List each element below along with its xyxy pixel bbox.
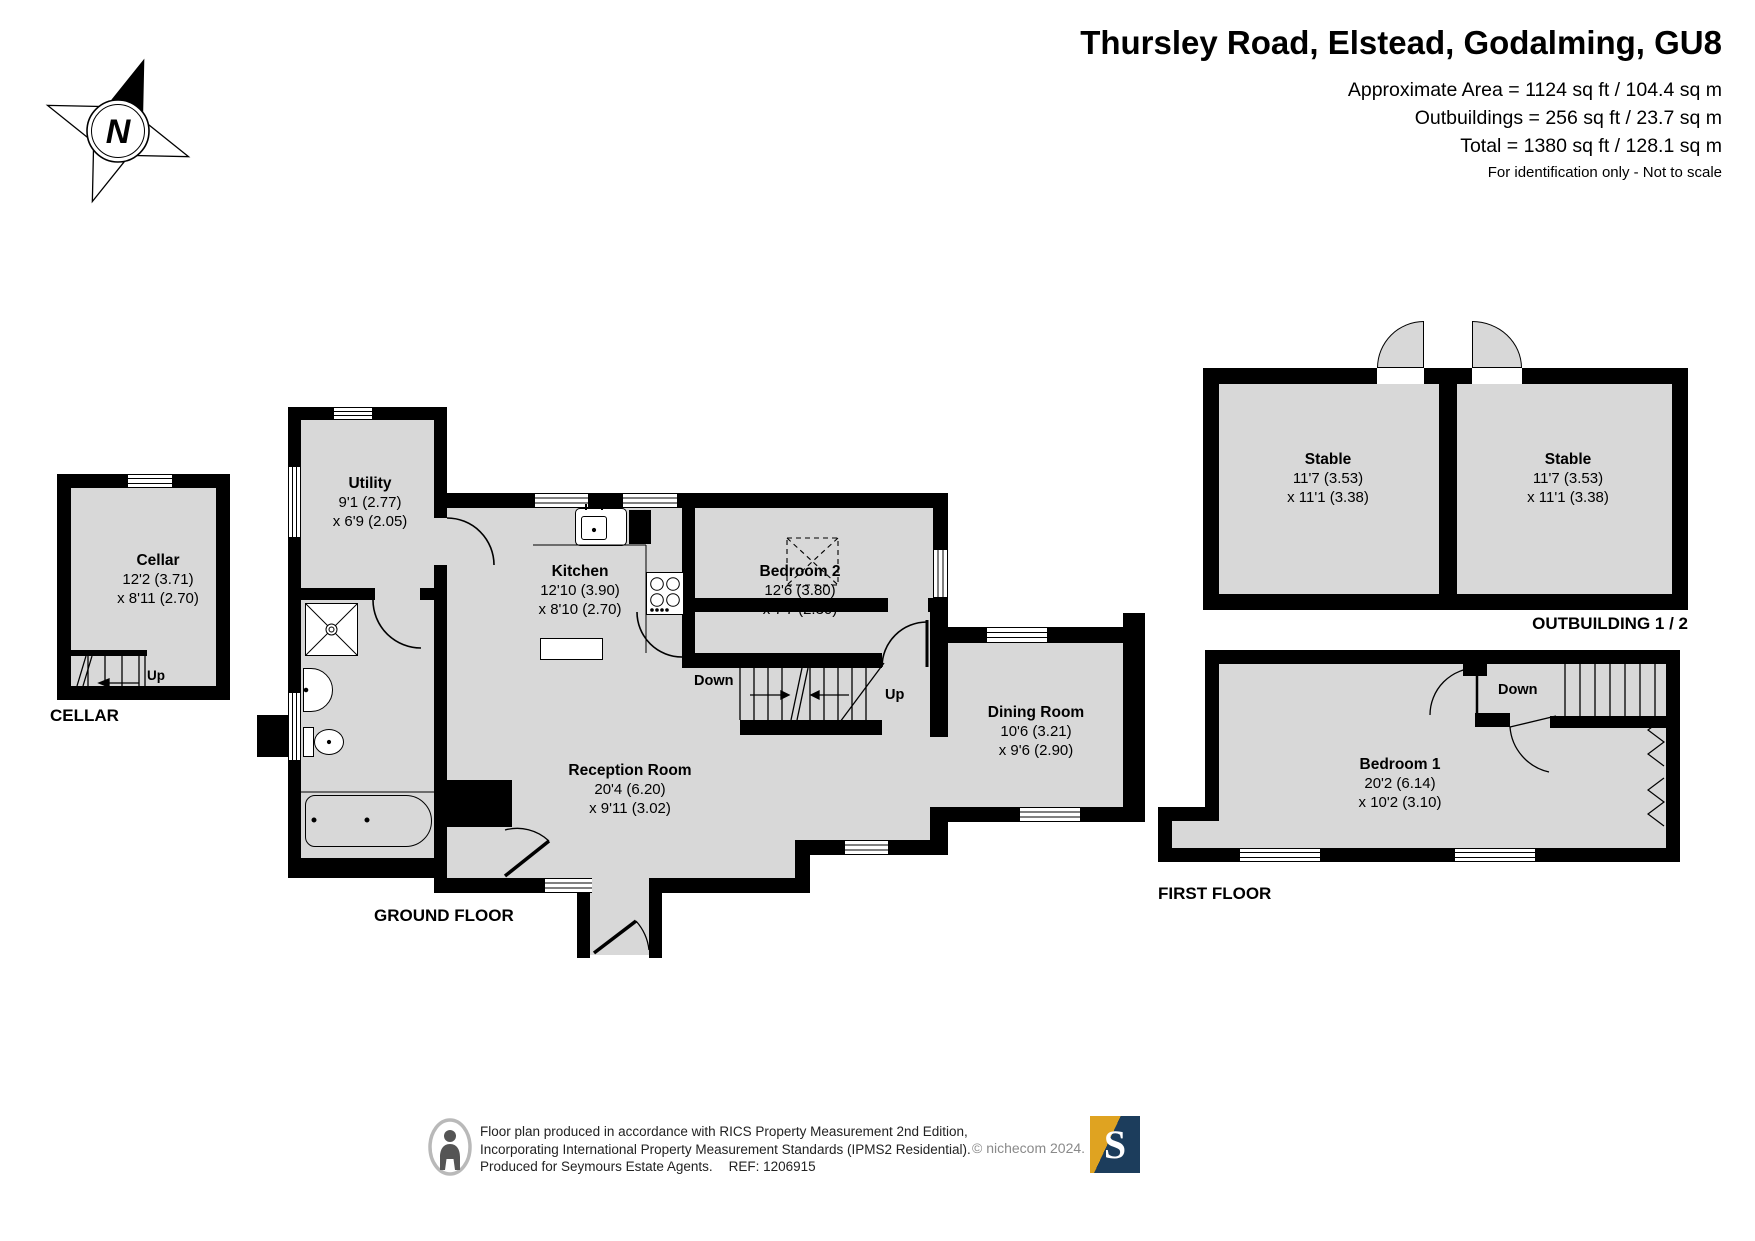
- footer-line2: Incorporating International Property Mea…: [480, 1141, 971, 1159]
- wall: [1522, 368, 1688, 384]
- window: [545, 878, 592, 893]
- wall: [257, 715, 288, 757]
- reference-number: REF: 1206915: [729, 1159, 816, 1174]
- stairs-down-label: Down: [694, 673, 733, 689]
- room-dim: x 6'9 (2.05): [333, 512, 408, 531]
- door-swing: [1472, 321, 1522, 368]
- room-label-stable1: Stable 11'7 (3.53) x 11'1 (3.38): [1287, 450, 1369, 507]
- bathtub: [305, 795, 432, 847]
- seymours-logo: S: [1090, 1116, 1140, 1173]
- sink-bowl: [581, 516, 607, 540]
- window: [933, 550, 948, 597]
- wall: [447, 780, 512, 827]
- window: [623, 493, 677, 508]
- wall: [740, 720, 882, 735]
- wall: [1158, 848, 1680, 862]
- kitchen-unit: [540, 638, 603, 660]
- bedroom1-floor: [1219, 664, 1666, 848]
- wall: [649, 893, 662, 958]
- window: [288, 467, 301, 537]
- room-dim: x 8'10 (2.70): [539, 600, 622, 619]
- stairs-up-label: Up: [147, 668, 165, 683]
- window: [845, 840, 888, 855]
- wall: [1672, 368, 1688, 610]
- room-name: Reception Room: [568, 761, 691, 780]
- wall: [930, 612, 948, 737]
- produced-for: Produced for Seymours Estate Agents.: [480, 1159, 713, 1174]
- compass-icon: N: [22, 35, 214, 227]
- wall: [1439, 384, 1457, 594]
- door-swing: [1377, 321, 1424, 368]
- wall: [1550, 716, 1666, 728]
- room-name: Stable: [1527, 450, 1609, 469]
- room-name: Kitchen: [539, 562, 622, 581]
- room-dim: 12'6 (3.80): [760, 581, 841, 600]
- logo-letter: S: [1104, 1121, 1126, 1168]
- wall: [1203, 594, 1688, 610]
- person-icon: [430, 1120, 470, 1174]
- room-label-utility: Utility 9'1 (2.77) x 6'9 (2.05): [333, 474, 408, 531]
- dining-floor: [930, 737, 948, 807]
- wall: [288, 858, 447, 878]
- door-opening: [434, 518, 447, 565]
- wall: [1123, 613, 1145, 822]
- window: [288, 693, 301, 760]
- room-dim: x 10'2 (3.10): [1359, 793, 1442, 812]
- wall: [288, 588, 447, 600]
- room-dim: 11'7 (3.53): [1287, 469, 1369, 488]
- room-label-kitchen: Kitchen 12'10 (3.90) x 8'10 (2.70): [539, 562, 622, 619]
- window: [334, 407, 372, 420]
- room-dim: 20'4 (6.20): [568, 780, 691, 799]
- kitchen-appliance: [629, 510, 651, 544]
- page-title: Thursley Road, Elstead, Godalming, GU8: [1080, 24, 1722, 62]
- toilet-bowl: [314, 729, 344, 755]
- room-dim: 12'10 (3.90): [539, 581, 622, 600]
- wall: [1205, 650, 1680, 664]
- wall: [434, 407, 447, 518]
- room-name: Cellar: [117, 551, 199, 570]
- room-name: Dining Room: [988, 703, 1084, 722]
- room-name: Bedroom 2: [760, 562, 841, 581]
- wall: [434, 878, 545, 893]
- window: [1020, 807, 1080, 822]
- room-label-reception: Reception Room 20'4 (6.20) x 9'11 (3.02): [568, 761, 691, 818]
- window: [1240, 848, 1320, 862]
- wall: [434, 600, 447, 858]
- shower-tray: [305, 603, 358, 656]
- approximate-area: Approximate Area = 1124 sq ft / 104.4 sq…: [1348, 79, 1722, 102]
- wall: [795, 840, 810, 893]
- room-dim: x 9'11 (3.02): [568, 799, 691, 818]
- hob: [646, 572, 684, 615]
- total-area: Total = 1380 sq ft / 128.1 sq m: [1460, 135, 1722, 158]
- porch-floor: [590, 893, 649, 955]
- wall: [577, 893, 590, 958]
- stairs-up-label: Up: [885, 687, 904, 703]
- room-dim: x 11'1 (3.38): [1287, 488, 1369, 507]
- wall: [1205, 650, 1219, 821]
- toilet-cistern: [303, 727, 314, 757]
- ground-floor-label: GROUND FLOOR: [374, 906, 514, 926]
- room-dim: 10'6 (3.21): [988, 722, 1084, 741]
- nichecom-copyright: © nichecom 2024.: [972, 1140, 1085, 1156]
- wall: [1666, 650, 1680, 862]
- wall: [1463, 664, 1487, 676]
- footer-disclaimer: Floor plan produced in accordance with R…: [480, 1123, 971, 1176]
- room-label-bedroom1: Bedroom 1 20'2 (6.14) x 10'2 (3.10): [1359, 755, 1442, 812]
- wall: [447, 493, 948, 508]
- room-dim: x 9'6 (2.90): [988, 741, 1084, 760]
- room-dim: x 7'7 (2.30): [760, 600, 841, 619]
- room-label-stable2: Stable 11'7 (3.53) x 11'1 (3.38): [1527, 450, 1609, 507]
- compass-north-letter: N: [106, 113, 132, 151]
- window: [535, 493, 588, 508]
- room-dim: 20'2 (6.14): [1359, 774, 1442, 793]
- bedroom1-floor: [1172, 821, 1233, 848]
- window: [987, 627, 1047, 643]
- outbuilding-label: OUTBUILDING 1 / 2: [1458, 614, 1688, 634]
- door-opening: [375, 588, 420, 600]
- wall: [1424, 368, 1472, 384]
- room-dim: x 8'11 (2.70): [117, 589, 199, 608]
- footer-line3: Produced for Seymours Estate Agents.REF:…: [480, 1158, 971, 1176]
- room-label-dining: Dining Room 10'6 (3.21) x 9'6 (2.90): [988, 703, 1084, 760]
- door-opening: [888, 598, 928, 612]
- wall: [71, 650, 147, 656]
- wall: [1203, 368, 1377, 384]
- footer-line1: Floor plan produced in accordance with R…: [480, 1123, 971, 1141]
- room-label-cellar: Cellar 12'2 (3.71) x 8'11 (2.70): [117, 551, 199, 608]
- wall: [649, 878, 795, 893]
- room-dim: 12'2 (3.71): [117, 570, 199, 589]
- floorplan-page: Thursley Road, Elstead, Godalming, GU8 A…: [0, 0, 1755, 1241]
- first-floor-label: FIRST FLOOR: [1158, 884, 1271, 904]
- room-dim: 11'7 (3.53): [1527, 469, 1609, 488]
- stairs-down-label: Down: [1498, 682, 1537, 698]
- lobby-floor: [447, 827, 510, 878]
- room-dim: 9'1 (2.77): [333, 493, 408, 512]
- window: [1455, 848, 1535, 862]
- wall: [1203, 368, 1219, 610]
- room-name: Utility: [333, 474, 408, 493]
- outbuildings-area: Outbuildings = 256 sq ft / 23.7 sq m: [1415, 107, 1722, 130]
- wall: [1475, 713, 1510, 727]
- cellar-floor-label: CELLAR: [50, 706, 119, 726]
- room-label-bedroom2: Bedroom 2 12'6 (3.80) x 7'7 (2.30): [760, 562, 841, 619]
- disclaimer-text: For identification only - Not to scale: [1488, 164, 1722, 181]
- door-opening: [592, 878, 649, 893]
- room-dim: x 11'1 (3.38): [1527, 488, 1609, 507]
- room-name: Bedroom 1: [1359, 755, 1442, 774]
- hallway-floor: [447, 508, 533, 612]
- wall: [682, 653, 882, 668]
- window: [128, 474, 172, 488]
- room-name: Stable: [1287, 450, 1369, 469]
